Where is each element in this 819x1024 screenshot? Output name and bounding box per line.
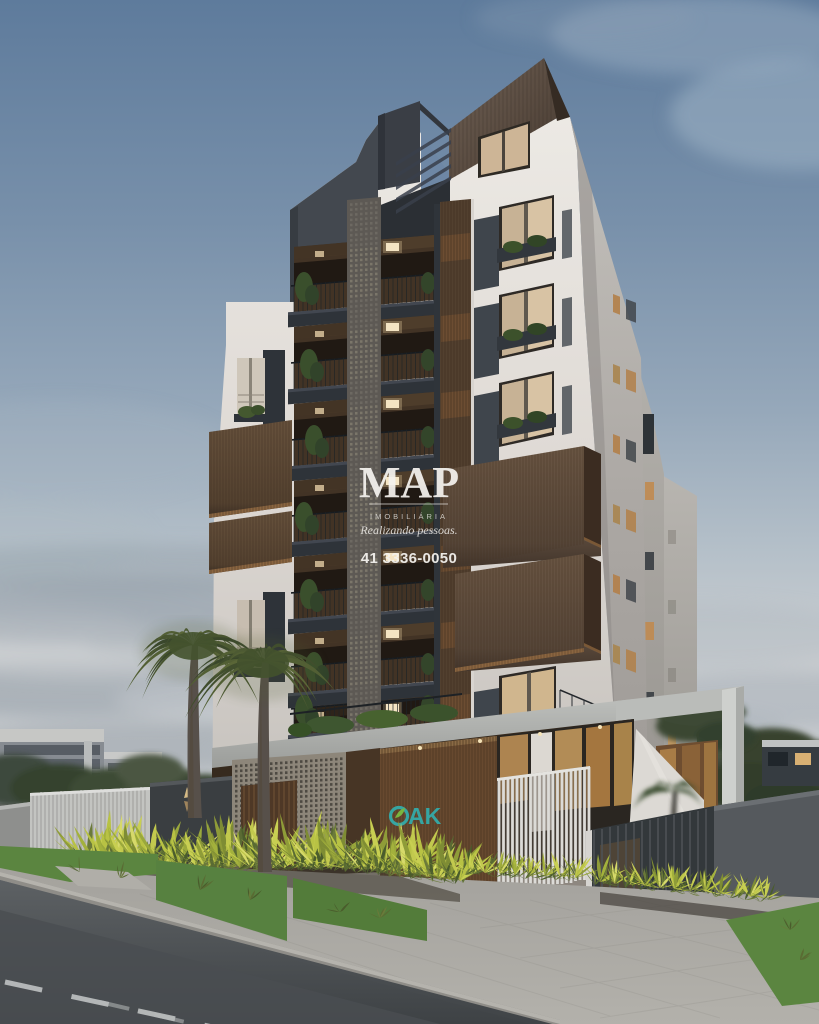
svg-text:Realizando pessoas.: Realizando pessoas. <box>359 523 457 537</box>
svg-text:IMOBILIÁRIA: IMOBILIÁRIA <box>370 512 448 521</box>
svg-text:41 3336-0050: 41 3336-0050 <box>361 550 457 567</box>
svg-text:MAP: MAP <box>359 458 459 507</box>
